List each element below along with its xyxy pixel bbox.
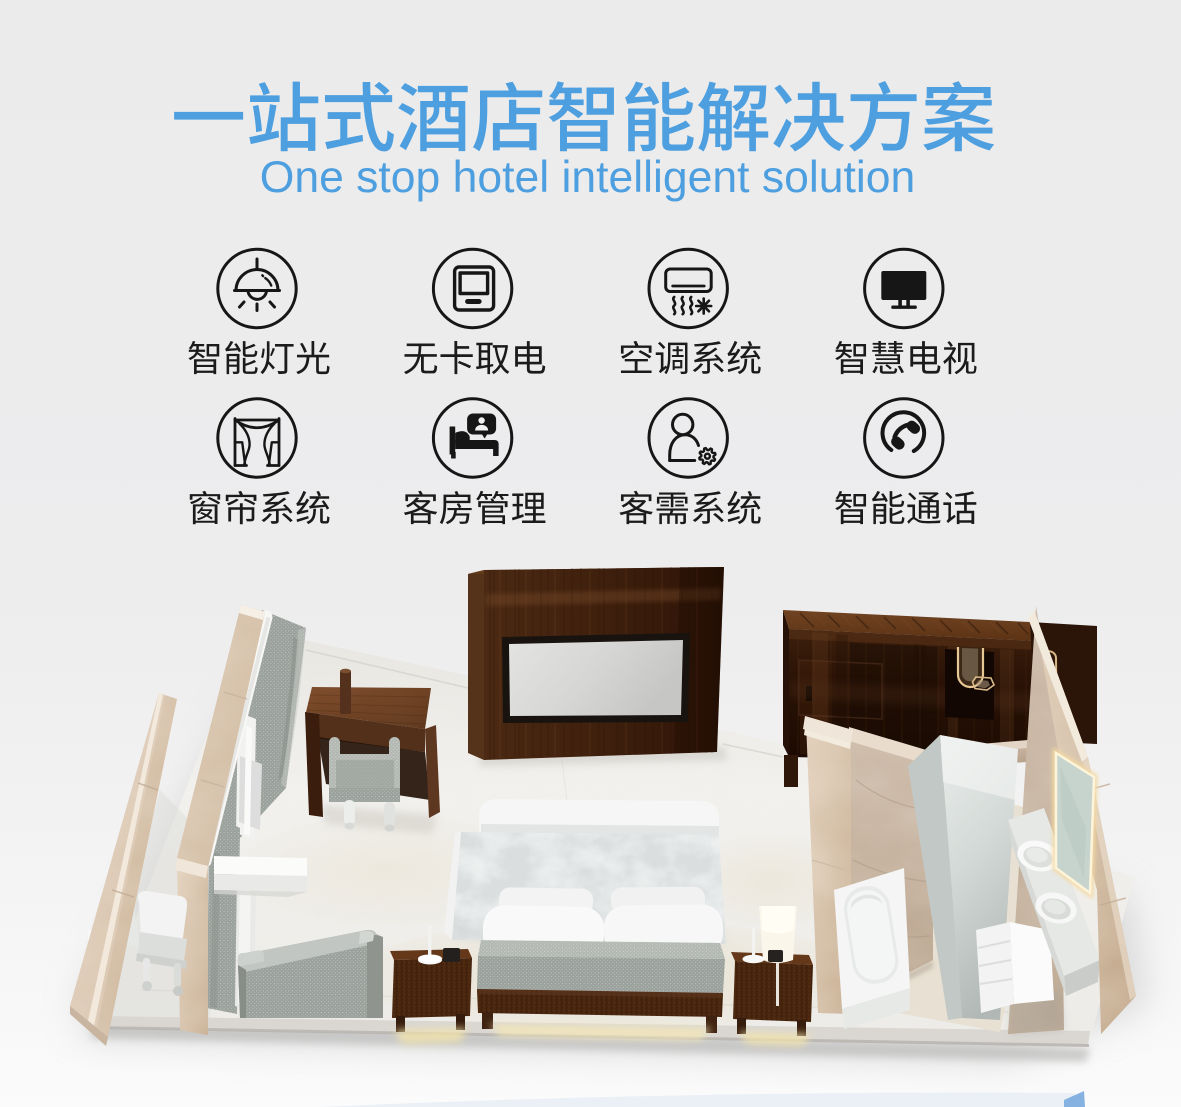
- svg-text:One stop hotel intelligent sol: One stop hotel intelligent solution: [260, 153, 916, 202]
